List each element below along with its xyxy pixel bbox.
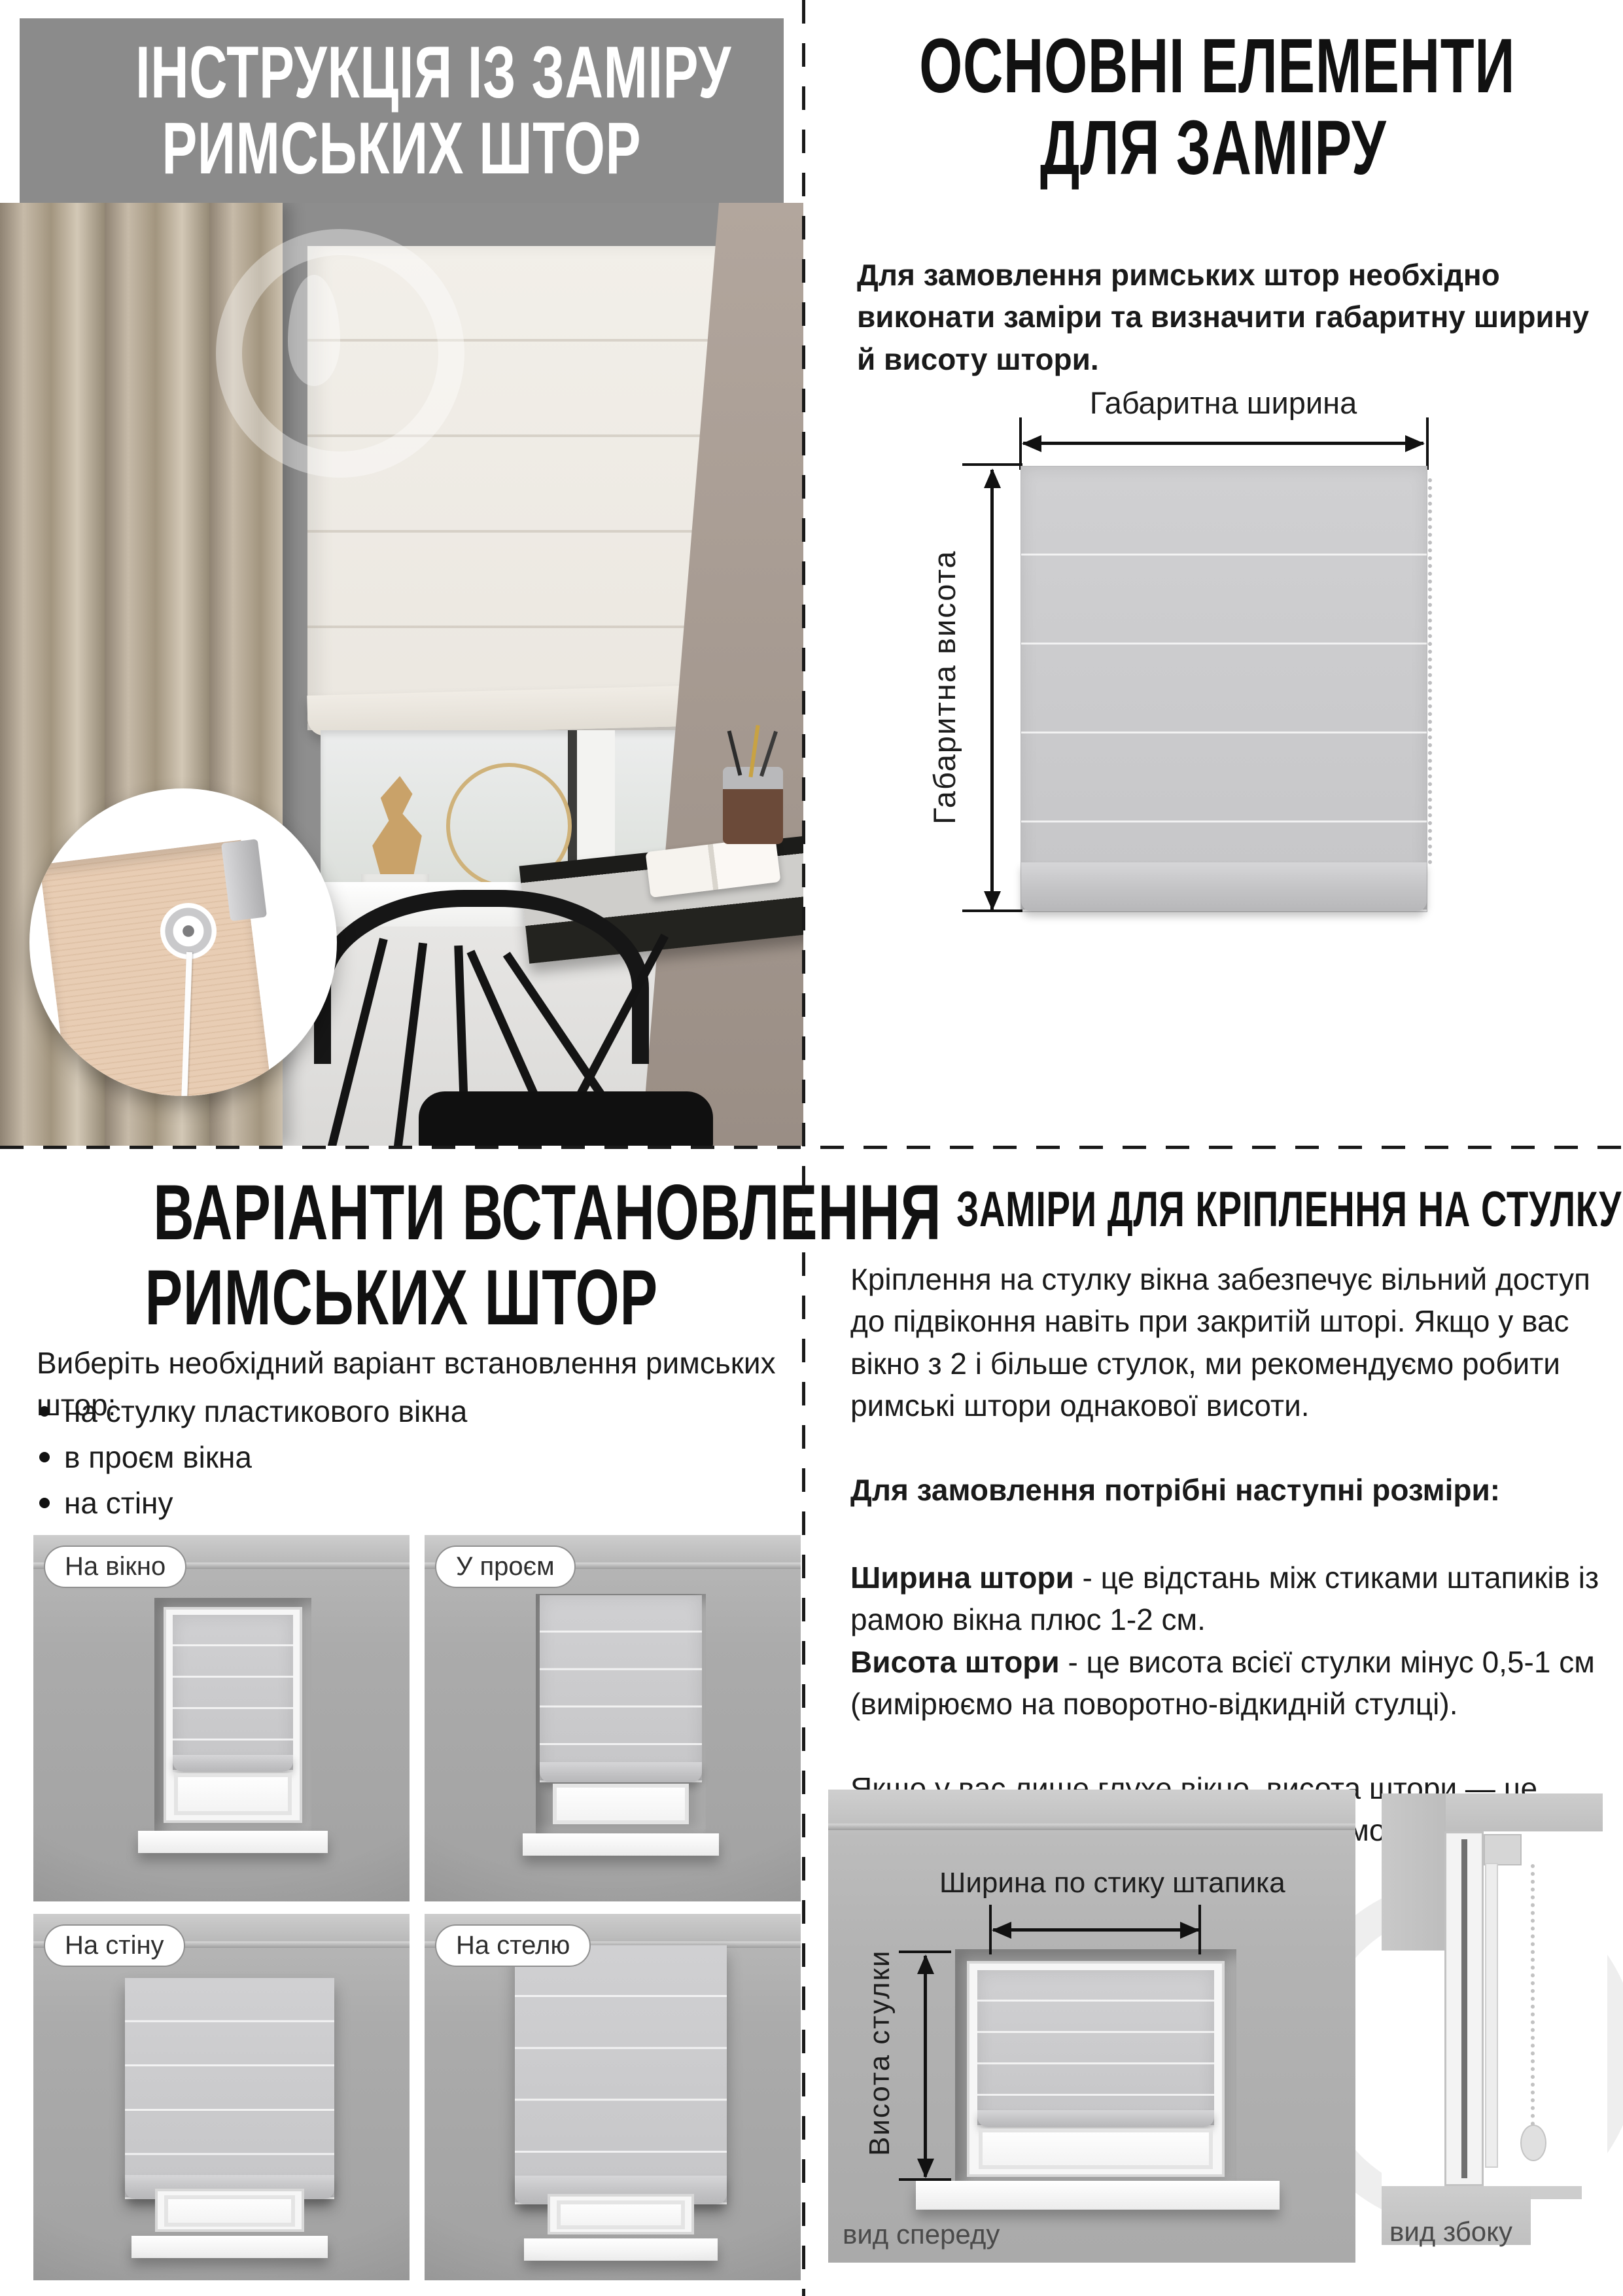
vignette (33, 1535, 410, 1901)
ceiling-molding (828, 1824, 1355, 1830)
bullet-dot-icon (39, 1498, 50, 1508)
height-definition: Висота штори - це висота всієї стулки мі… (850, 1641, 1599, 1725)
front-view-label: вид спереду (843, 2219, 1000, 2250)
overall-width-arrow (1023, 442, 1423, 445)
option-badge: У проєм (435, 1545, 576, 1588)
option-card-opening: У проєм (425, 1535, 801, 1901)
bullet-text: в проєм вікна (64, 1439, 252, 1475)
sizes-heading: Для замовлення потрібні наступні розміри… (850, 1469, 1599, 1511)
side-frame-gasket-line (1461, 1839, 1467, 2178)
side-sill-lip (1531, 2186, 1582, 2199)
overall-width-label: Габаритна ширина (1021, 385, 1426, 421)
elements-title-line2: ДЛЯ ЗАМІРУ (1040, 108, 1386, 188)
vignette (33, 1914, 410, 2280)
sash-height-arrow (924, 1956, 927, 2177)
roman-blind (977, 1970, 1214, 2127)
elements-title-line1: ОСНОВНІ ЕЛЕМЕНТИ (919, 26, 1515, 107)
sash-title: ЗАМІРИ ДЛЯ КРІПЛЕННЯ НА СТУЛКУ ВІКНА (956, 1184, 1623, 1235)
option-badge: На стіну (44, 1924, 185, 1967)
bead-width-label: Ширина по стику штапика (939, 1867, 1253, 1899)
side-blind-fabric (1485, 1863, 1498, 2168)
bullet-text: на стулку пластикового вікна (64, 1393, 467, 1430)
diagram-blind (1021, 466, 1427, 912)
section-top-left: ІНСТРУКЦІЯ ІЗ ЗАМІРУ РИМСЬКИХ ШТОР (0, 0, 803, 1146)
option-card-wall: На стіну (33, 1914, 410, 2280)
overall-height-arrow (990, 470, 994, 910)
section-bottom-right: ЗАМІРИ ДЛЯ КРІПЛЕННЯ НА СТУЛКУ ВІКНА Крі… (803, 1146, 1623, 2296)
bead-width-arrow (993, 1928, 1198, 1932)
height-term: Висота штори (850, 1645, 1060, 1679)
horizontal-dashed-divider (0, 1146, 1623, 1149)
overall-height-label: Габаритна висота (926, 497, 962, 877)
diagram-blind-folds (1021, 467, 1427, 911)
window-sill (916, 2181, 1280, 2210)
section-bottom-left: ВАРІАНТИ ВСТАНОВЛЕННЯ РИМСЬКИХ ШТОР Вибе… (0, 1146, 803, 2296)
vignette (425, 1535, 801, 1901)
list-item: на стулку пластикового вікна (39, 1393, 759, 1430)
blind-detail-inset (29, 788, 337, 1096)
side-view-label: вид збоку (1389, 2216, 1512, 2248)
side-wall-return (1382, 1793, 1446, 1951)
variants-title-line2: РИМСЬКИХ ШТОР (145, 1257, 658, 1339)
page-title-banner: ІНСТРУКЦІЯ ІЗ ЗАМІРУ РИМСЬКИХ ШТОР (20, 18, 784, 203)
option-card-ceiling: На стелю (425, 1914, 801, 2280)
diagram-blind-chain (1428, 478, 1432, 864)
bead-tick-left (989, 1905, 992, 1954)
sash-tick-top (899, 1951, 951, 1953)
chair-seat (419, 1091, 713, 1146)
width-tick-right (1426, 417, 1429, 470)
brand-watermark-icon (216, 229, 464, 478)
page-title-line2: РИМСЬКИХ ШТОР (162, 111, 642, 186)
option-badge: На стелю (435, 1924, 591, 1967)
bead-tick-right (1198, 1905, 1201, 1954)
pencil-cup (723, 767, 783, 844)
width-term: Ширина штори (850, 1561, 1074, 1595)
elements-intro: Для замовлення римських штор необхідно в… (857, 254, 1590, 380)
width-definition: Ширина штори - це відстань між стиками ш… (850, 1557, 1599, 1641)
diagram-blind-bottom-bar (1021, 862, 1427, 911)
sash-tick-bottom (899, 2178, 951, 2181)
width-tick-left (1019, 417, 1022, 470)
option-card-window: На вікно (33, 1535, 410, 1901)
bullet-dot-icon (39, 1406, 50, 1417)
blind-folds (977, 1970, 1214, 2127)
blind-bottom-bar (977, 2110, 1214, 2127)
sash-paragraph-1: Кріплення на стулку вікна забезпечує віл… (850, 1258, 1599, 1427)
side-chain-weight (1520, 2125, 1546, 2161)
inset-grommet-icon (160, 903, 217, 959)
bullet-text: на стіну (64, 1485, 173, 1521)
side-chain (1531, 1864, 1535, 2126)
interior-photo (0, 203, 803, 1146)
leaflet-page: ІНСТРУКЦІЯ ІЗ ЗАМІРУ РИМСЬКИХ ШТОР (0, 0, 1623, 2296)
option-badge: На вікно (44, 1545, 186, 1588)
side-blind-headrail (1484, 1834, 1522, 1865)
page-title-line1: ІНСТРУКЦІЯ ІЗ ЗАМІРУ (135, 35, 731, 111)
height-tick-top (962, 463, 1022, 466)
window-glass (979, 2128, 1213, 2169)
height-tick-bottom (962, 910, 1022, 912)
sash-height-label: Висота стулки (864, 1986, 896, 2156)
section-top-right: ОСНОВНІ ЕЛЕМЕНТИ ДЛЯ ЗАМІРУ Для замовлен… (803, 0, 1623, 1146)
front-view-image: Ширина по стику штапика Висота стулки ви… (828, 1790, 1355, 2263)
list-item: в проєм вікна (39, 1439, 759, 1475)
bullet-dot-icon (39, 1452, 50, 1462)
vignette (425, 1914, 801, 2280)
list-item: на стіну (39, 1485, 759, 1521)
side-view-image: вид збоку (1382, 1793, 1607, 2263)
